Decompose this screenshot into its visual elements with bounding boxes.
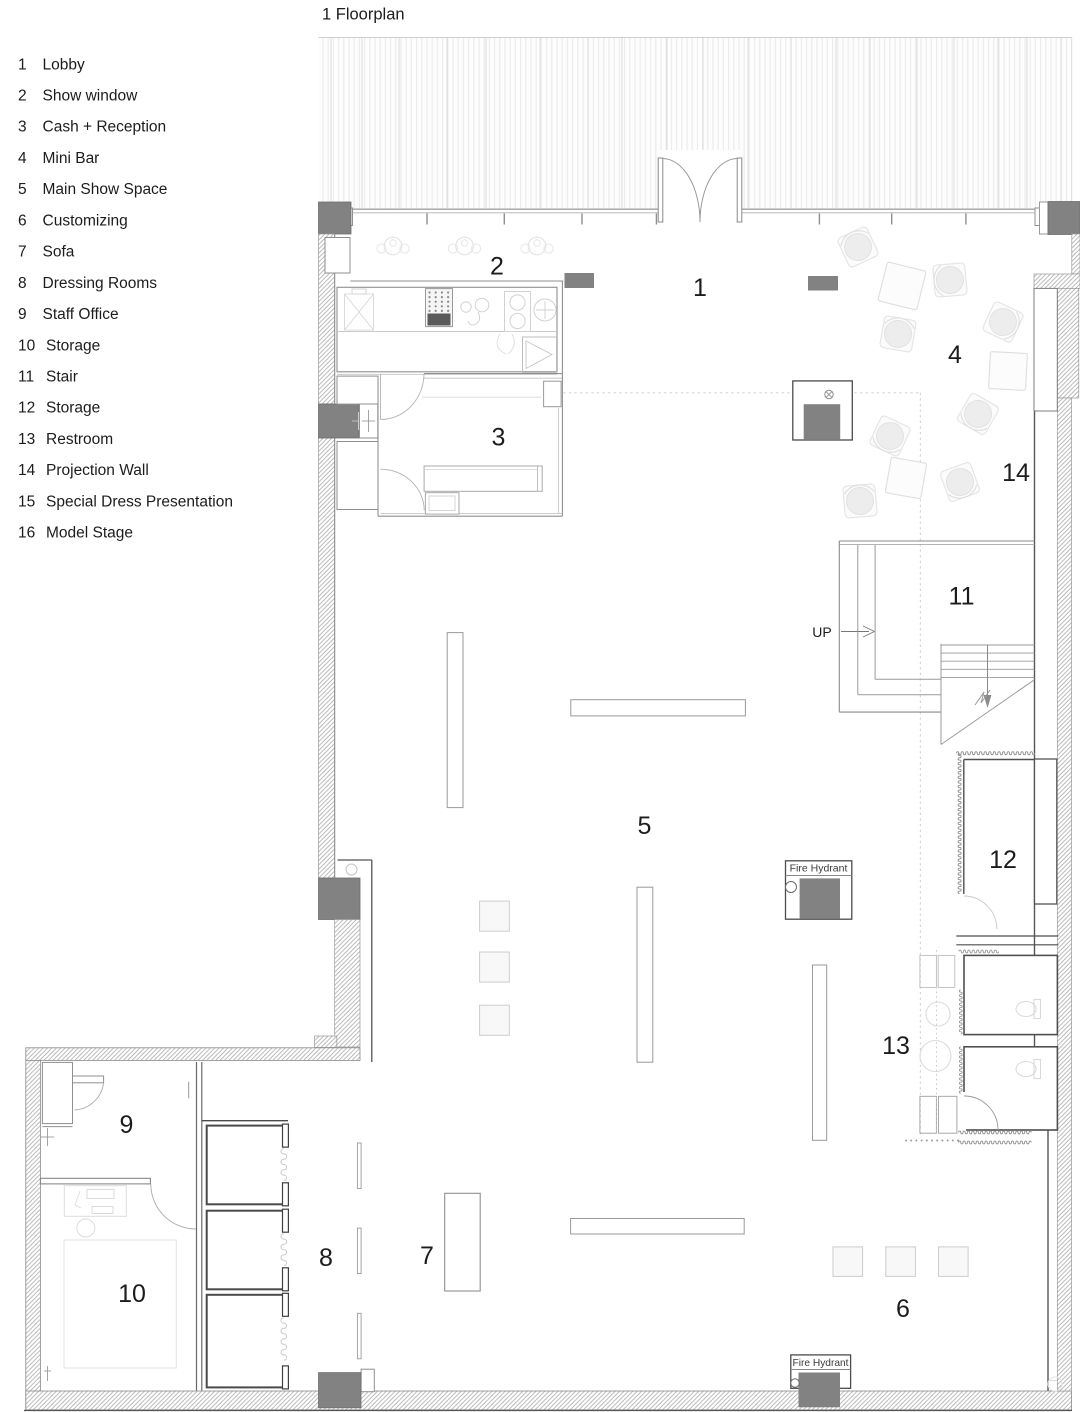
svg-text:3: 3 (492, 424, 506, 452)
svg-text:13: 13 (882, 1032, 910, 1060)
svg-text:11: 11 (18, 369, 34, 386)
svg-text:3: 3 (18, 119, 27, 136)
svg-text:1: 1 (18, 56, 27, 73)
svg-text:Lobby: Lobby (43, 56, 85, 73)
svg-text:Restroom: Restroom (46, 431, 113, 448)
svg-text:12: 12 (18, 400, 35, 417)
svg-text:Customizing: Customizing (43, 212, 128, 229)
svg-text:Dressing Rooms: Dressing Rooms (43, 275, 158, 292)
svg-text:Main Show Space: Main Show Space (43, 181, 168, 198)
svg-text:UP: UP (812, 624, 831, 640)
svg-text:Staff Office: Staff Office (43, 306, 119, 323)
svg-text:2: 2 (490, 253, 504, 281)
svg-text:Sofa: Sofa (43, 244, 75, 261)
svg-text:10: 10 (118, 1280, 146, 1308)
svg-text:1 Floorplan: 1 Floorplan (322, 6, 405, 24)
svg-text:10: 10 (18, 337, 36, 354)
svg-text:Storage: Storage (46, 400, 100, 417)
svg-text:Model Stage: Model Stage (46, 525, 133, 542)
svg-text:14: 14 (1002, 459, 1030, 487)
svg-text:8: 8 (319, 1244, 333, 1272)
svg-text:4: 4 (18, 150, 27, 167)
svg-text:15: 15 (18, 493, 35, 510)
svg-text:9: 9 (18, 306, 27, 323)
svg-text:Special Dress Presentation: Special Dress Presentation (46, 493, 233, 510)
svg-text:Mini Bar: Mini Bar (43, 150, 100, 167)
svg-text:8: 8 (18, 275, 27, 292)
svg-text:Cash + Reception: Cash + Reception (43, 119, 167, 136)
svg-text:Stair: Stair (46, 369, 78, 386)
svg-text:13: 13 (18, 431, 35, 448)
svg-text:7: 7 (18, 244, 27, 261)
svg-text:5: 5 (638, 812, 652, 840)
svg-text:14: 14 (18, 462, 36, 479)
svg-text:Storage: Storage (46, 337, 100, 354)
svg-text:6: 6 (896, 1295, 910, 1323)
svg-text:11: 11 (949, 583, 975, 611)
svg-text:Fire Hydrant: Fire Hydrant (792, 1358, 848, 1369)
svg-text:Projection Wall: Projection Wall (46, 462, 149, 479)
svg-text:7: 7 (420, 1242, 434, 1270)
svg-text:Show window: Show window (43, 88, 139, 105)
svg-text:9: 9 (120, 1111, 134, 1139)
svg-text:Fire Hydrant: Fire Hydrant (790, 863, 848, 875)
svg-text:2: 2 (18, 88, 27, 105)
svg-text:12: 12 (989, 846, 1017, 874)
svg-text:16: 16 (18, 525, 35, 542)
svg-text:4: 4 (948, 341, 962, 369)
svg-text:1: 1 (693, 274, 707, 302)
svg-text:5: 5 (18, 181, 27, 198)
svg-text:6: 6 (18, 212, 27, 229)
